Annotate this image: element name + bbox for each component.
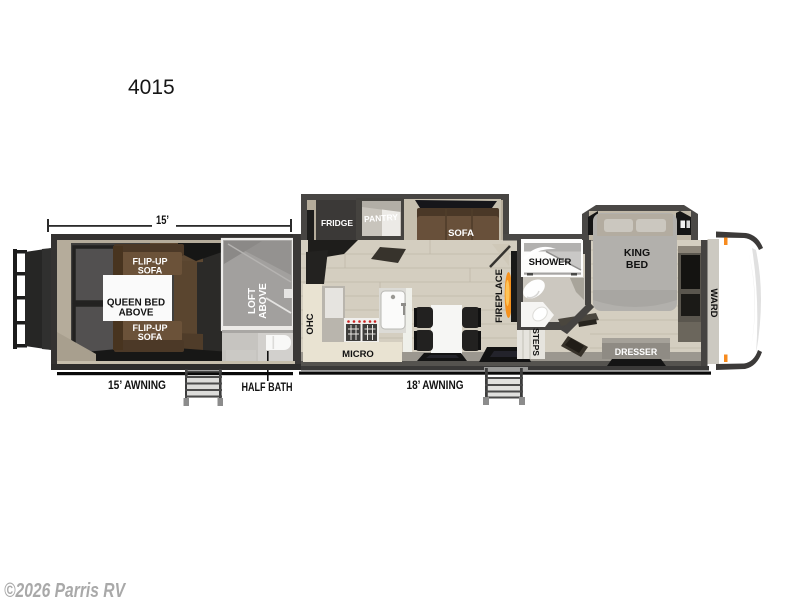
- svg-text:FIREPLACE: FIREPLACE: [494, 269, 505, 323]
- svg-text:4015: 4015: [128, 76, 175, 99]
- svg-text:15’: 15’: [156, 215, 169, 227]
- svg-text:MICRO: MICRO: [342, 349, 374, 360]
- svg-text:SOFA: SOFA: [138, 332, 163, 342]
- svg-text:STEPS: STEPS: [531, 328, 541, 356]
- svg-text:FRIDGE: FRIDGE: [321, 218, 353, 228]
- svg-text:DRESSER: DRESSER: [615, 347, 658, 357]
- svg-text:BED: BED: [626, 259, 649, 271]
- svg-text:SOFA: SOFA: [138, 266, 163, 276]
- svg-text:ABOVE: ABOVE: [119, 308, 154, 319]
- svg-text:OHC: OHC: [305, 313, 316, 334]
- svg-text:15’ AWNING: 15’ AWNING: [108, 380, 166, 392]
- svg-text:18’ AWNING: 18’ AWNING: [407, 380, 464, 392]
- svg-text:KING: KING: [624, 247, 650, 259]
- svg-text:SOFA: SOFA: [448, 228, 474, 239]
- svg-text:LOFTABOVE: LOFTABOVE: [247, 283, 269, 319]
- svg-text:WARD: WARD: [708, 288, 719, 317]
- svg-text:©2026 Parris RV: ©2026 Parris RV: [4, 580, 126, 600]
- svg-text:SHOWER: SHOWER: [529, 257, 572, 268]
- svg-text:HALF BATH: HALF BATH: [242, 382, 293, 394]
